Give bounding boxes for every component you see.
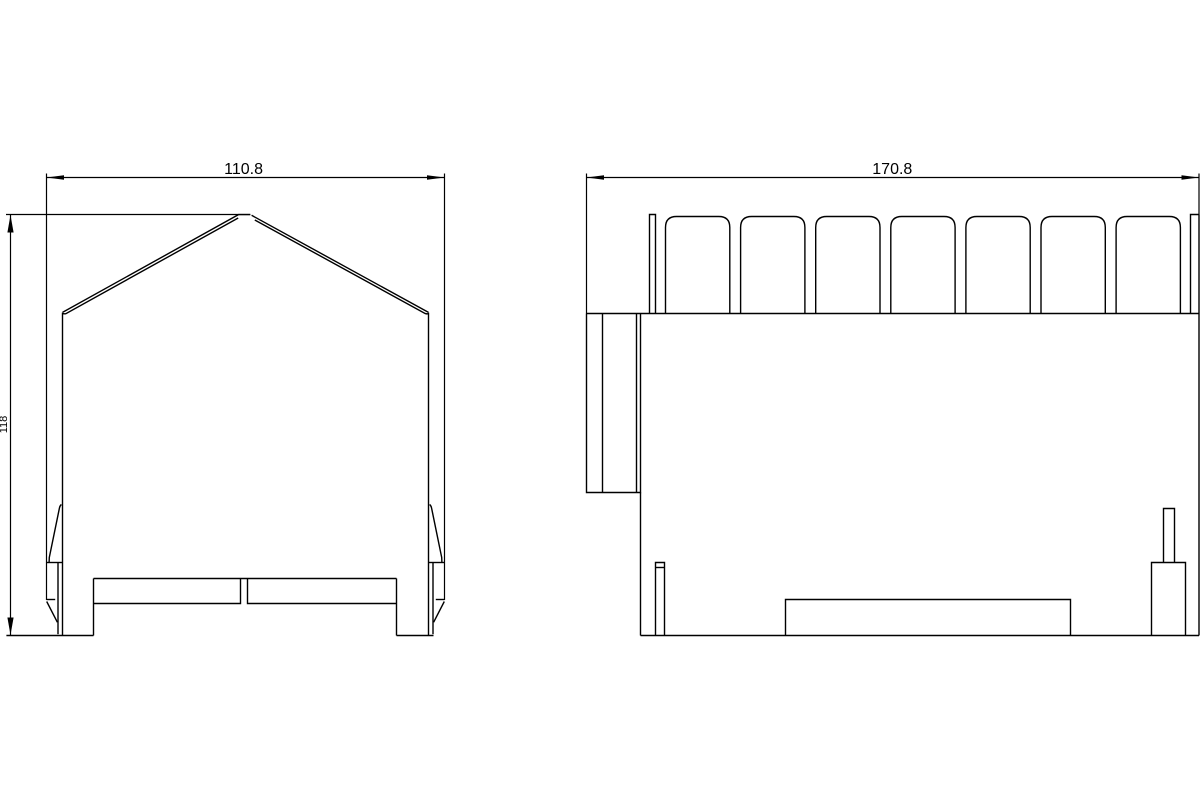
svg-text:110.8: 110.8 xyxy=(224,161,263,178)
svg-text:118: 118 xyxy=(0,416,10,434)
svg-text:170.8: 170.8 xyxy=(872,161,912,178)
